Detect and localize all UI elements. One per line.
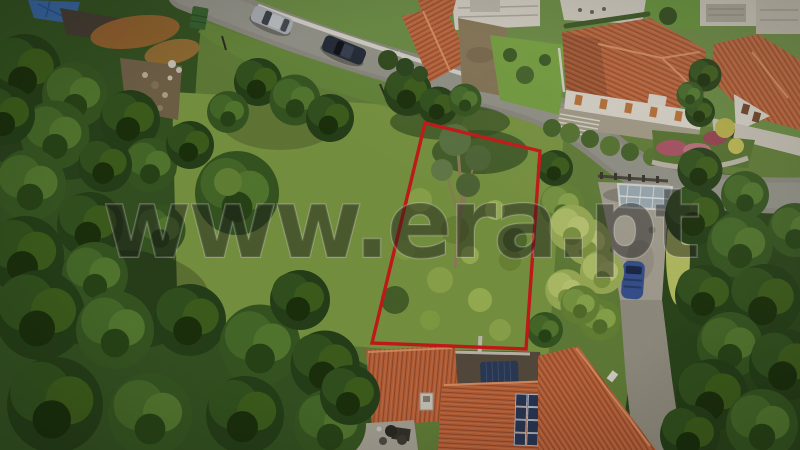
vignette [0,0,800,450]
aerial-photo-svg: www.era.pt [0,0,800,450]
aerial-drone-photo: www.era.pt [0,0,800,450]
